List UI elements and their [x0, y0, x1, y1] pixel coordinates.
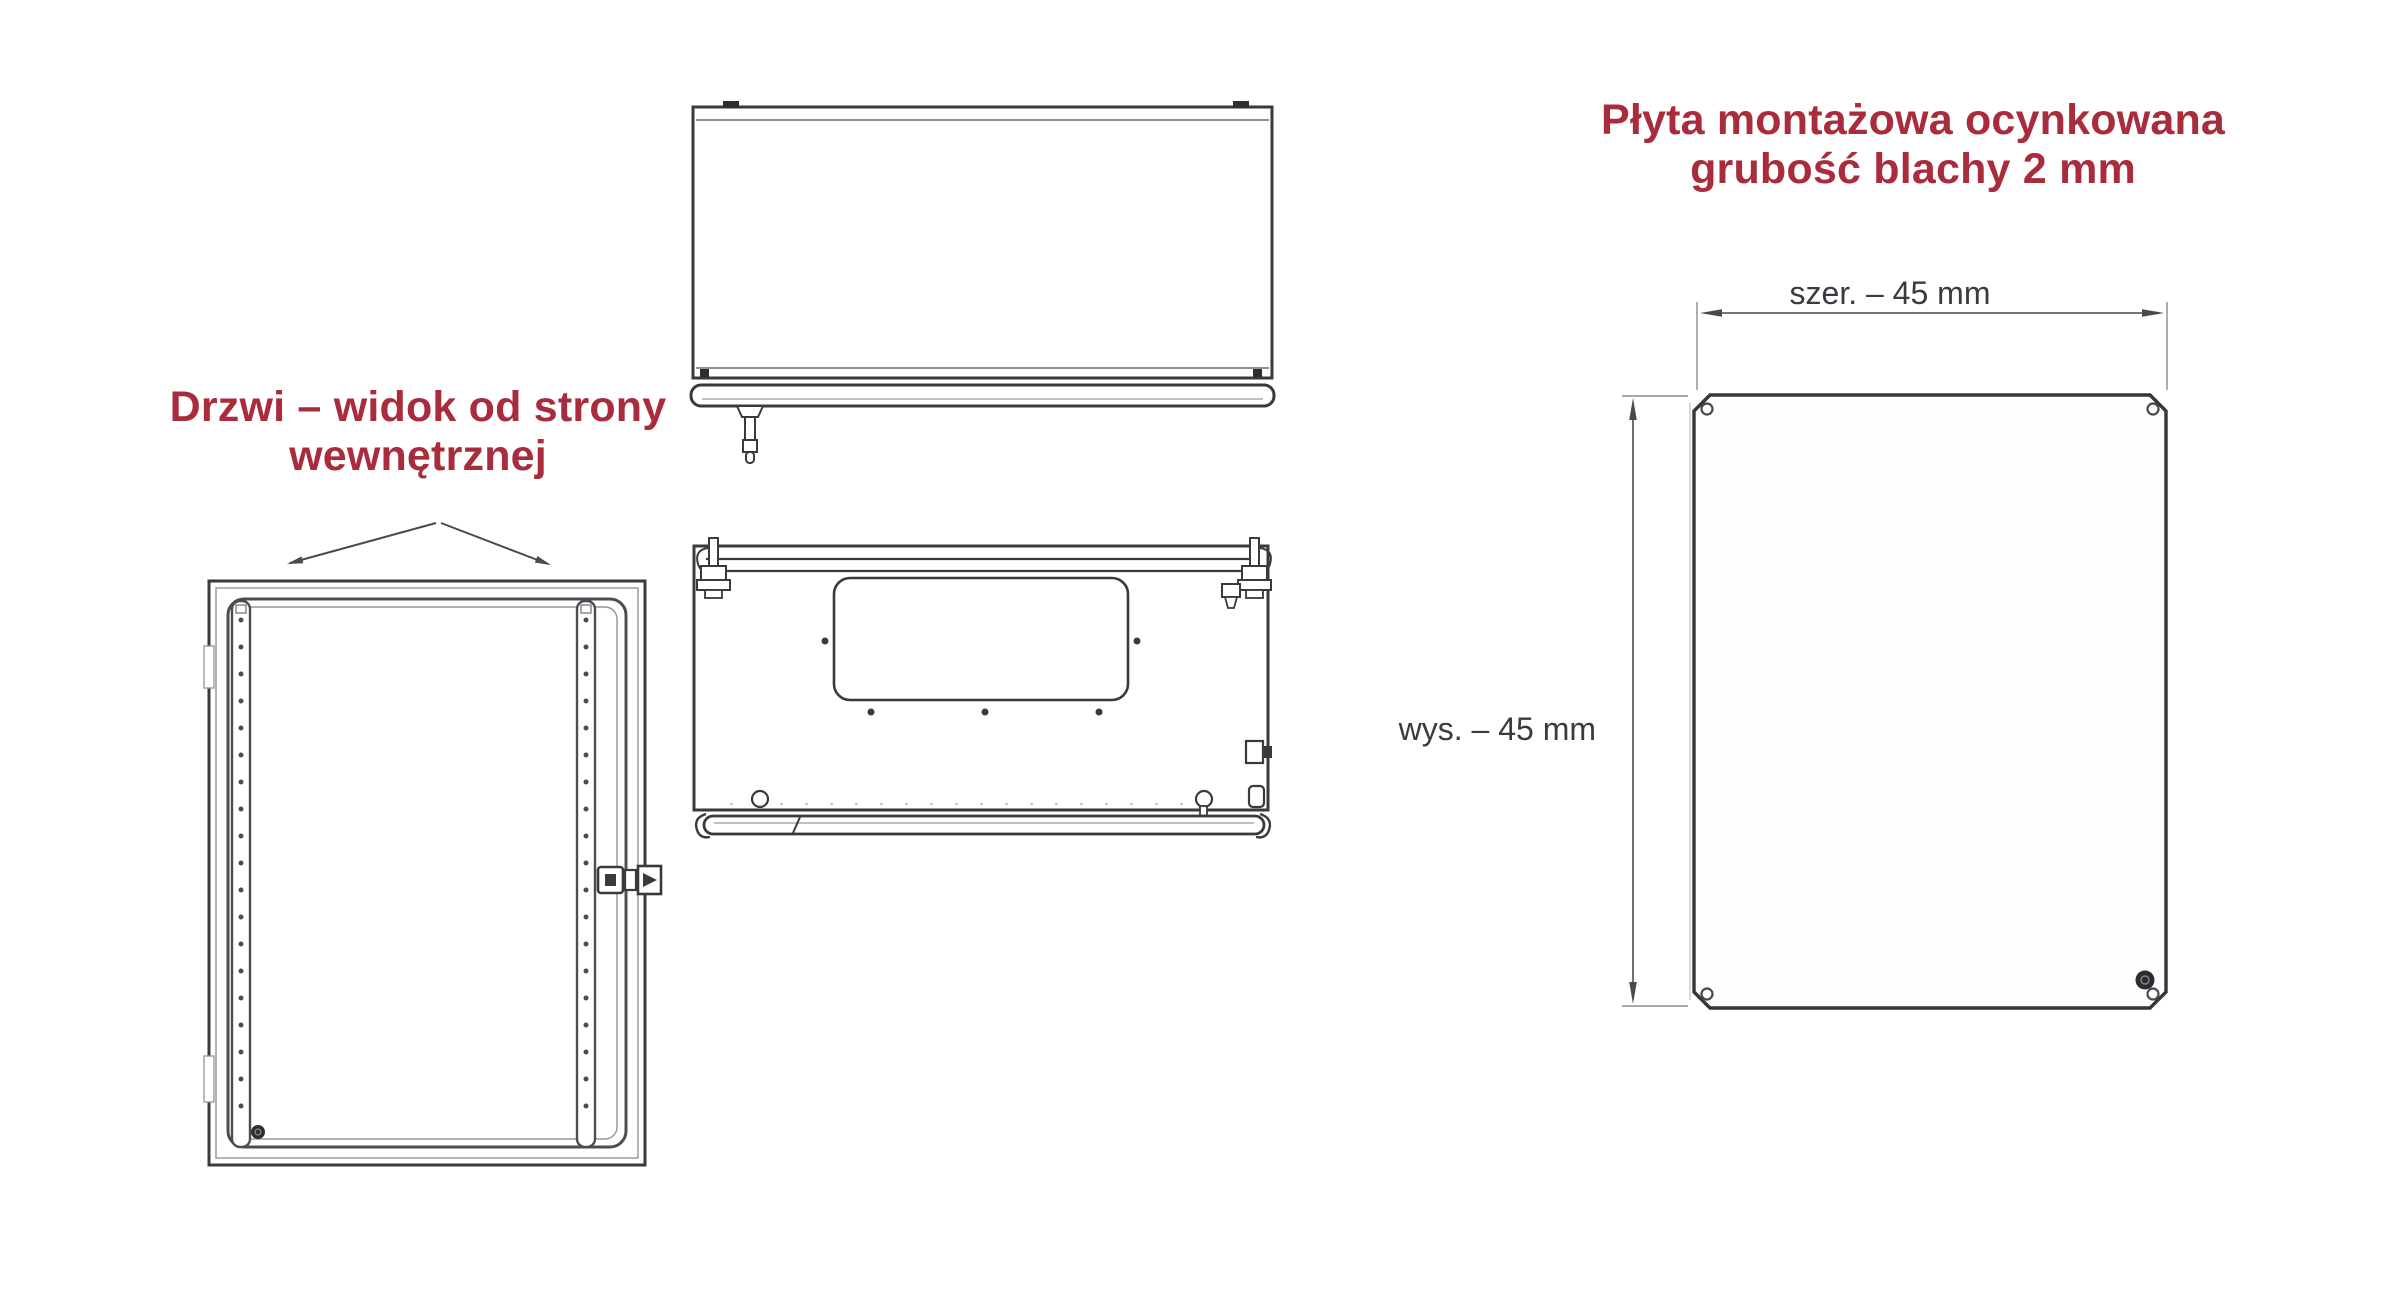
door-hinge-notch-bottom [204, 1056, 214, 1102]
plate-hole-top-left [1702, 404, 1713, 415]
bottom-hole-left [752, 791, 768, 807]
dim-arrowhead-right-icon [2142, 309, 2164, 317]
door-inner-view [204, 581, 661, 1165]
hinge-pin [737, 406, 763, 463]
leader-line-right [441, 523, 548, 564]
width-dimension-label: szer. – 45 mm [1690, 276, 2090, 310]
door-mounting-rail-right [577, 601, 595, 1147]
mounting-plate-view [1690, 395, 2166, 1008]
corner-bracket [1249, 786, 1264, 807]
mounting-plate-title: Płyta montażowa ocynkowana grubość blach… [1558, 96, 2268, 194]
door-earth-bolt [251, 1125, 265, 1139]
height-dimension-label: wys. – 45 mm [1236, 712, 1596, 746]
enclosure-top-body [693, 107, 1272, 378]
leader-line-left [290, 523, 436, 563]
mounting-plate-title-line1: Płyta montażowa ocynkowana [1601, 96, 2225, 144]
door-view-title-line2: wewnętrznej [289, 432, 547, 480]
plate-hole-bottom-left [1702, 989, 1713, 1000]
door-latch [598, 866, 661, 894]
bottom-edge-clip-left [700, 369, 709, 377]
bottom-hole-right [1196, 791, 1212, 807]
plate-hole-top-right [2148, 404, 2159, 415]
bottom-rail-bar [704, 816, 1264, 834]
door-view-title: Drzwi – widok od strony wewnętrznej [118, 383, 718, 481]
enclosure-bottom-view [694, 538, 1272, 837]
plate-hole-bottom-right [2148, 989, 2159, 1000]
door-leader-arrows [287, 523, 551, 565]
leader-arrowhead-right-icon [535, 556, 551, 565]
dim-arrowhead-bottom-icon [1629, 982, 1637, 1004]
dim-arrowhead-left-icon [1700, 309, 1722, 317]
enclosure-top-view [691, 101, 1274, 463]
door-hinge-notch-top [204, 646, 214, 688]
gland-plate-cutout [834, 578, 1128, 700]
leader-arrowhead-left-icon [287, 556, 303, 564]
plate-earth-bolt [2136, 971, 2155, 990]
bottom-edge-clip-right [1253, 369, 1262, 377]
rain-canopy-bar [691, 385, 1274, 406]
width-dimension [1697, 302, 2167, 390]
door-mounting-rail-left [232, 601, 250, 1147]
top-edge-clip-right [1233, 101, 1249, 108]
datasheet-diagram: Drzwi – widok od strony wewnętrznej Płyt… [0, 0, 2404, 1293]
height-dimension [1622, 396, 1688, 1006]
top-edge-clip-left [723, 101, 739, 108]
mounting-plate-title-line2: grubość blachy 2 mm [1690, 145, 2136, 193]
mounting-plate-outline [1694, 395, 2166, 1008]
door-view-title-line1: Drzwi – widok od strony [170, 383, 667, 431]
dim-arrowhead-top-icon [1629, 398, 1637, 420]
